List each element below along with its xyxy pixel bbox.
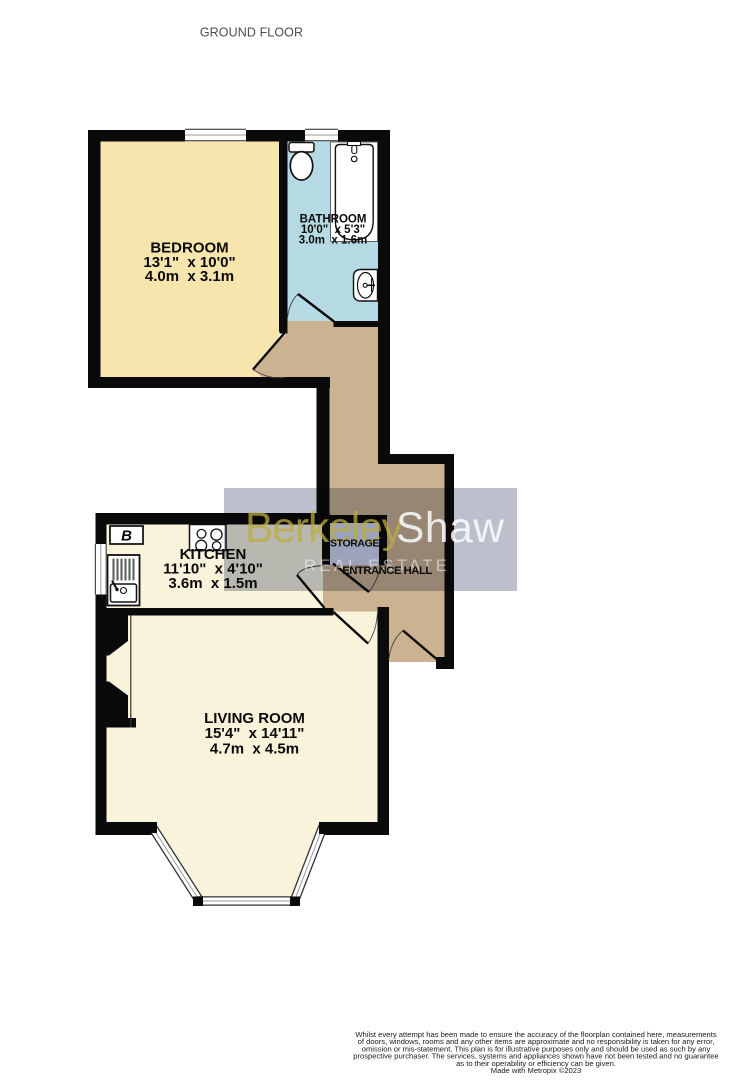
svg-text:Shaw: Shaw: [396, 505, 504, 552]
svg-text:15'4" x 14'11": 15'4" x 14'11": [205, 725, 305, 742]
svg-text:GROUND FLOOR: GROUND FLOOR: [200, 25, 303, 39]
svg-text:4.0m x 3.1m: 4.0m x 3.1m: [145, 268, 234, 285]
svg-text:B: B: [121, 528, 132, 545]
svg-text:STORAGE: STORAGE: [330, 538, 379, 550]
svg-text:Berkeley: Berkeley: [245, 505, 404, 552]
svg-text:ENTRANCE HALL: ENTRANCE HALL: [342, 565, 432, 577]
svg-text:3.0m x 1.6m: 3.0m x 1.6m: [299, 234, 367, 246]
svg-text:4.7m x 4.5m: 4.7m x 4.5m: [210, 741, 299, 758]
svg-text:Made with Metropix ©2023: Made with Metropix ©2023: [491, 1066, 581, 1075]
